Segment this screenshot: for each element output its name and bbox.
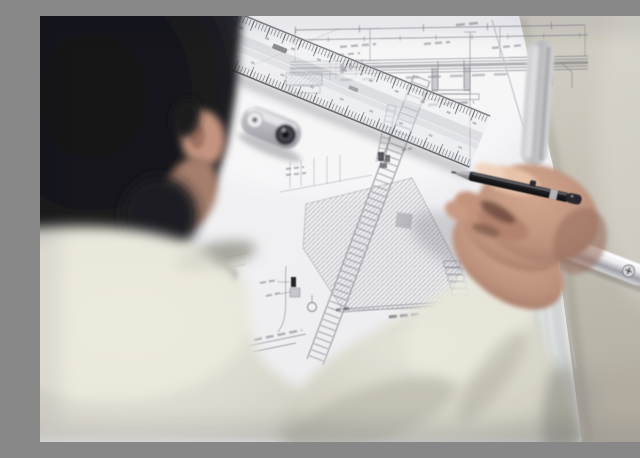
photo-drafting-scene	[40, 16, 640, 442]
scene-svg	[40, 16, 640, 442]
